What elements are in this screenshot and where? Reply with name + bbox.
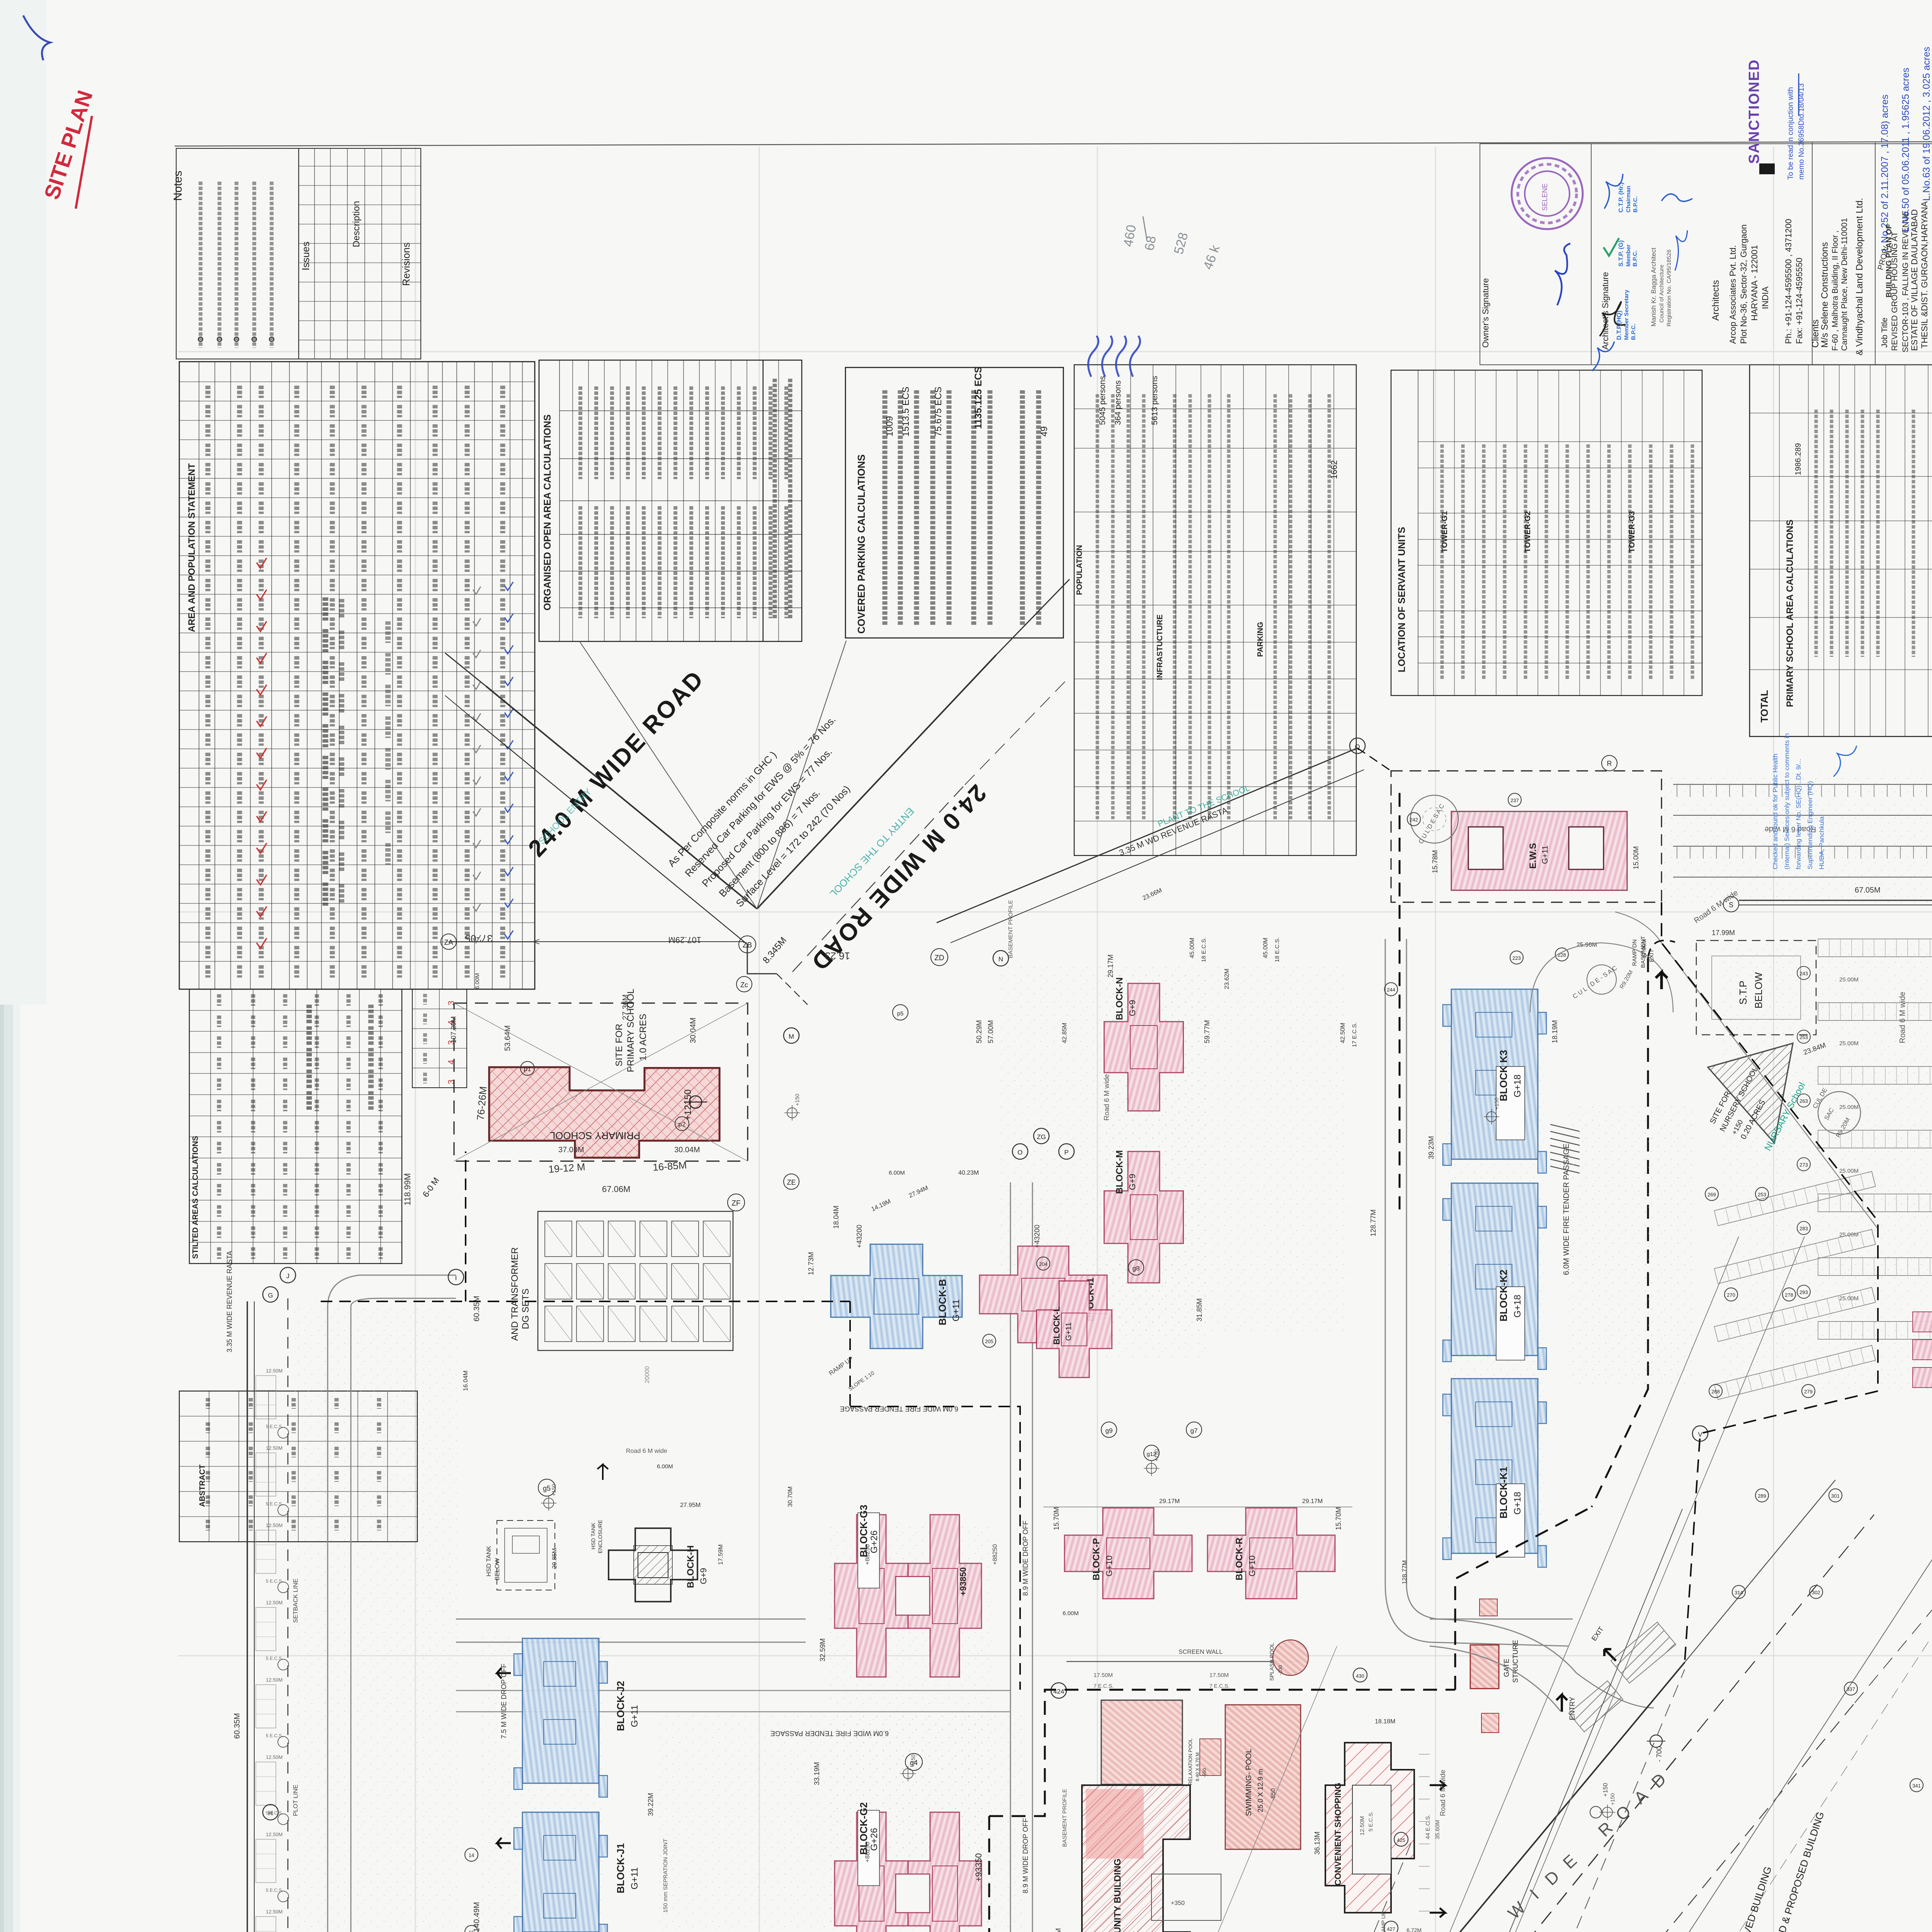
svg-text:Notes: Notes [172,171,184,201]
svg-text:RAMP UP: RAMP UP [1380,1911,1386,1932]
svg-text:Ph.: +91-124-4595500 , 4371200: Ph.: +91-124-4595500 , 4371200 [1784,219,1793,344]
svg-text:Manish Kr. Bagga Architect: Manish Kr. Bagga Architect [1650,248,1657,327]
svg-text:288: 288 [1711,1389,1720,1395]
svg-text:18.04M: 18.04M [832,1206,840,1229]
svg-text:+93350: +93350 [974,1853,983,1882]
svg-text:BLOCK-J2: BLOCK-J2 [615,1681,626,1731]
svg-text:5 E.C.S.: 5 E.C.S. [266,1578,283,1584]
svg-text:BLOCK-K2: BLOCK-K2 [1498,1270,1509,1321]
svg-text:BLOCK-B: BLOCK-B [937,1279,948,1325]
svg-text:G+9: G+9 [699,1568,708,1584]
svg-text:STRUCTURE: STRUCTURE [1512,1640,1519,1683]
svg-text:17 E.C.S.: 17 E.C.S. [1351,1022,1358,1047]
svg-text:237: 237 [1510,798,1519,803]
svg-text:128.77M: 128.77M [1401,1560,1408,1584]
svg-text:BLOCK-N: BLOCK-N [1114,977,1125,1020]
svg-text:- 700: - 700 [1655,1746,1663,1762]
svg-text:HSD TANK: HSD TANK [486,1546,492,1577]
svg-text:Cannaught Place, New Delhi-110: Cannaught Place, New Delhi-110001 [1840,218,1849,351]
svg-text:ABSTRACT: ABSTRACT [198,1464,207,1507]
svg-text:BLOCK-J1: BLOCK-J1 [615,1843,626,1893]
svg-text:g8: g8 [1133,1265,1140,1272]
svg-text:5045 persons: 5045 persons [1098,376,1107,425]
svg-text:46 k: 46 k [1201,243,1223,271]
svg-text:12.50M: 12.50M [1359,1816,1366,1835]
svg-text:20000: 20000 [644,1366,651,1383]
svg-text:R9.20M: R9.20M [1619,969,1634,990]
svg-text:6.00M: 6.00M [474,973,481,989]
svg-text:14.19M: 14.19M [871,1198,892,1213]
svg-text:L.No.63 of 19.06.2012 , 3.025: L.No.63 of 19.06.2012 , 3.025 acres [1921,47,1932,201]
svg-text:P: P [1064,1149,1068,1156]
svg-text:29.85M: 29.85M [551,1548,558,1569]
svg-text:1135.125 ECS: 1135.125 ECS [973,367,984,429]
svg-text:37'-05: 37'-05 [465,933,493,944]
svg-text:SITE PLAN: SITE PLAN [39,87,97,202]
svg-text:ORGANISED OPEN AREA CALCULATIO: ORGANISED OPEN AREA CALCULATIONS [542,415,553,611]
svg-text:60.35M: 60.35M [233,1713,241,1739]
svg-text:HARYANA - 122001: HARYANA - 122001 [1750,245,1759,321]
svg-text:242: 242 [1410,817,1418,823]
svg-text:7 E.C.S.: 7 E.C.S. [1094,1683,1114,1689]
svg-text:TOWER-G2: TOWER-G2 [1524,511,1532,553]
svg-text:BLOCK-R: BLOCK-R [1234,1537,1245,1580]
svg-text:THESIL &DIST. GURGAON,HARYANA: THESIL &DIST. GURGAON,HARYANA [1920,201,1929,349]
svg-text:204: 204 [1039,1261,1048,1267]
svg-text:RAMP DN: RAMP DN [1631,939,1638,966]
svg-text:+12150: +12150 [683,1089,693,1121]
svg-text:Arcop Associates Pvt. Ltd.: Arcop Associates Pvt. Ltd. [1728,245,1738,344]
svg-text:17.50M: 17.50M [1094,1672,1113,1679]
svg-text:forwarding letter No. SE(HQ)..: forwarding letter No. SE(HQ)...Dt. 9/... [1795,759,1802,869]
svg-text:1662: 1662 [1329,460,1339,479]
svg-text:To be read in conjuction with: To be read in conjuction with [1787,87,1795,180]
svg-text:BLOCK K3: BLOCK K3 [1498,1050,1509,1101]
svg-text:SWIMMING- POOL: SWIMMING- POOL [1245,1749,1253,1816]
svg-text:ZF: ZF [731,1199,740,1207]
svg-text:Fax: +91-124-4595550: Fax: +91-124-4595550 [1794,258,1804,344]
svg-text:31.85M: 31.85M [1196,1298,1203,1321]
svg-text:17.59M: 17.59M [718,1544,724,1565]
svg-text:BLOCK-P: BLOCK-P [1091,1538,1102,1580]
svg-text:15.78M: 15.78M [1431,850,1439,873]
svg-text:16.04M: 16.04M [463,1371,469,1391]
svg-text:TOTAL: TOTAL [1759,690,1770,723]
svg-text:12.50M: 12.50M [266,1909,282,1915]
svg-text:15.70M: 15.70M [1053,1507,1060,1530]
svg-text:Road 6 M wide: Road 6 M wide [1103,1074,1111,1121]
svg-text:g7: g7 [1190,1427,1198,1434]
svg-text:1.0 ACRES: 1.0 ACRES [638,1014,648,1061]
svg-text:67.06M: 67.06M [602,1184,630,1194]
svg-text:BUILDING PLAN OF: BUILDING PLAN OF [1885,224,1893,298]
svg-text:25.00M: 25.00M [1839,1168,1859,1174]
svg-text:27.94M: 27.94M [908,1185,930,1199]
svg-text:Member: Member [1625,244,1632,267]
svg-text:5 E.C.S.: 5 E.C.S. [266,1888,283,1893]
svg-text:283: 283 [1799,1226,1808,1231]
svg-text:314: 314 [1735,1590,1743,1595]
svg-text:6.72M: 6.72M [1406,1927,1422,1932]
svg-text:EXIT: EXIT [1648,949,1655,962]
svg-text:35.60M: 35.60M [1434,1820,1441,1839]
svg-text:BLOCK-K1: BLOCK-K1 [1498,1467,1509,1519]
svg-text:Road 6 M wide: Road 6 M wide [1439,1770,1447,1816]
svg-text:49: 49 [1039,426,1049,437]
svg-text:+93850: +93850 [958,1567,968,1596]
svg-text:J: J [286,1272,290,1280]
svg-text:SELENE: SELENE [1541,183,1549,211]
svg-text:17.50M: 17.50M [1209,1672,1229,1679]
svg-text:BASEMENT: BASEMENT [1640,936,1646,968]
svg-text:42.50M: 42.50M [1340,1023,1346,1043]
svg-text:C.T.P. (Hr.): C.T.P. (Hr.) [1618,182,1624,213]
svg-text:G+18: G+18 [1512,1075,1523,1097]
svg-text:269: 269 [1708,1192,1716,1197]
svg-text:Architect's Signature: Architect's Signature [1600,272,1610,350]
svg-text:R: R [1607,760,1612,767]
svg-text:D: D [1541,1867,1563,1889]
svg-text:Issues: Issues [300,241,311,270]
svg-text:G+11: G+11 [951,1299,961,1321]
svg-text:SLOPE 1:10: SLOPE 1:10 [847,1370,876,1392]
svg-text:273: 273 [1799,1162,1808,1168]
svg-text:& Vindhyachal Land Development: & Vindhyachal Land Development Ltd. [1854,198,1865,355]
svg-text:107.29M: 107.29M [668,935,701,945]
svg-text:278: 278 [1785,1292,1793,1298]
svg-text:12.50M: 12.50M [266,1832,282,1837]
svg-text:Architects: Architects [1711,280,1721,321]
svg-text:12.50M: 12.50M [266,1754,282,1760]
svg-text:AREA AND POPULATION STATEMENT: AREA AND POPULATION STATEMENT [187,463,197,632]
svg-text:23.66M: 23.66M [1142,887,1163,902]
svg-text:1513.5 ECS: 1513.5 ECS [901,387,911,437]
svg-text:Chairman: Chairman [1625,186,1632,213]
svg-text:17.99M: 17.99M [1712,929,1735,937]
svg-text:BASEMENT PROFILE: BASEMENT PROFILE [1061,1789,1068,1847]
svg-text:5 E.C.S.: 5 E.C.S. [1367,1811,1374,1832]
svg-text:C U L - D E - S A C: C U L - D E - S A C [1572,965,1619,1000]
svg-text:ZA: ZA [444,939,453,946]
svg-text:25.00M: 25.00M [1839,1040,1859,1047]
svg-text:5 E.C.S.: 5 E.C.S. [266,1656,283,1661]
svg-text:TOWER-G3: TOWER-G3 [1628,511,1636,553]
svg-text:G: G [268,1292,273,1299]
svg-text:150 mm SEPRATION JOINT: 150 mm SEPRATION JOINT [662,1839,669,1913]
svg-text:27.36M: 27.36M [621,994,630,1020]
svg-text:25.00M: 25.00M [1839,1295,1859,1302]
svg-text:263: 263 [1799,1098,1808,1104]
svg-text:12.50M: 12.50M [266,1368,282,1374]
svg-text:16.23: 16.23 [825,950,850,962]
svg-text:40.23M: 40.23M [958,1170,979,1176]
svg-text:Registration No. CA/95/18526: Registration No. CA/95/18526 [1666,250,1672,327]
svg-text:+88250: +88250 [864,1544,871,1565]
svg-text:6.00M: 6.00M [1063,1610,1079,1617]
svg-text:APPROVED BUILDING: APPROVED BUILDING [1730,1865,1774,1932]
svg-text:TOWER-G1: TOWER-G1 [1440,511,1449,553]
svg-text:BELOW: BELOW [494,1558,501,1580]
svg-text:+88250: +88250 [992,1544,998,1565]
svg-text:Plot No-36, Sector-32, Gurgaon: Plot No-36, Sector-32, Gurgaon [1739,224,1748,344]
svg-text:42.85M: 42.85M [1061,1023,1068,1043]
svg-text:+43200: +43200 [855,1225,863,1248]
svg-text:STILTED AREAS CALCULATIONS: STILTED AREAS CALCULATIONS [191,1136,200,1259]
svg-text:EXIT: EXIT [1590,1625,1605,1642]
svg-text:G+11: G+11 [629,1705,640,1727]
svg-text:-550: -550 [1202,1768,1207,1777]
svg-text:HUDA, Panchkula: HUDA, Panchkula [1818,816,1825,869]
svg-text:253: 253 [1758,1192,1766,1197]
svg-text:76-26M: 76-26M [474,1086,489,1121]
svg-text:B.P.C.: B.P.C. [1632,250,1638,267]
svg-text:L.No.50 of 05.06.2011 , 1.9562: L.No.50 of 05.06.2011 , 1.95625 acres [1900,68,1911,232]
svg-text:BASEMENT PROFILE: BASEMENT PROFILE [1007,900,1014,958]
svg-text:75.675 ECS: 75.675 ECS [933,387,944,437]
svg-text:+150: +150 [910,1754,916,1767]
svg-text:15.00M: 15.00M [1632,846,1640,869]
svg-text:107.29M: 107.29M [450,1016,457,1043]
svg-text:SETBACK LINE: SETBACK LINE [293,1578,299,1623]
svg-text:PRIMARY SCHOOL: PRIMARY SCHOOL [550,1130,641,1141]
svg-text:ENCLOSURE: ENCLOSURE [597,1520,603,1553]
svg-text:8.345M: 8.345M [761,935,789,966]
svg-text:G+9: G+9 [1128,1000,1137,1016]
svg-text:36.13M: 36.13M [1313,1832,1321,1855]
svg-text:G+10: G+10 [1104,1556,1114,1577]
svg-text:12.50M: 12.50M [266,1445,282,1451]
svg-text:DG SETS: DG SETS [520,1289,531,1329]
svg-text:337: 337 [1847,1686,1855,1692]
svg-text:341: 341 [1912,1783,1921,1789]
svg-text:+43200: +43200 [1033,1225,1041,1248]
svg-text:12.50M: 12.50M [266,1600,282,1605]
svg-text:B.P.C.: B.P.C. [1630,324,1637,340]
svg-text:45.00M: 45.00M [1189,938,1196,958]
svg-text:430: 430 [1356,1673,1364,1679]
svg-text:5 E.C.S.: 5 E.C.S. [266,1501,283,1507]
svg-text:BLOCK-M: BLOCK-M [1114,1150,1125,1194]
svg-text:18.18M: 18.18M [1375,1718,1395,1725]
svg-text:12.73M: 12.73M [807,1252,815,1275]
svg-text:G+10: G+10 [1247,1556,1257,1577]
svg-text:F-60 , Malhotra Building, II F: F-60 , Malhotra Building, II Floor , [1831,230,1840,351]
svg-text:CONVENIENT SHOPPING: CONVENIENT SHOPPING [1333,1783,1343,1886]
svg-text:57.00M: 57.00M [987,1020,995,1043]
svg-text:270: 270 [1727,1292,1735,1298]
svg-text:Revisions: Revisions [400,242,412,286]
svg-text:68: 68 [1142,235,1159,252]
svg-text:528: 528 [1171,231,1191,256]
svg-text:118.99M: 118.99M [403,1173,412,1206]
svg-text:INDIA: INDIA [1760,286,1770,309]
svg-text:COVERED PARKING CALCULATIONS: COVERED PARKING CALCULATIONS [855,454,867,634]
svg-text:8.9 M WIDE DROP OFF: 8.9 M WIDE DROP OFF [1022,1818,1029,1893]
svg-text:p5: p5 [897,1010,904,1017]
svg-text:SANCTIONED: SANCTIONED [1746,59,1762,164]
svg-text:14: 14 [469,1852,474,1858]
svg-text:G+11: G+11 [1541,845,1549,864]
svg-text:29.17M: 29.17M [1107,954,1114,978]
svg-text:15: 15 [469,1930,474,1932]
svg-text:M/s Selene Constructions: M/s Selene Constructions [1820,242,1830,348]
svg-text:Member Secretary: Member Secretary [1623,289,1630,340]
svg-text:18.19M: 18.19M [1551,1020,1559,1043]
svg-text:(Internal) Services only subje: (Internal) Services only subject to comm… [1783,733,1791,869]
svg-text:289: 289 [1758,1493,1766,1499]
svg-text:29.17M: 29.17M [1302,1498,1323,1505]
svg-text:39.22M: 39.22M [647,1793,655,1816]
svg-text:A: A [1631,1786,1652,1808]
svg-text:+88250: +88250 [864,1842,871,1862]
svg-text:-100: -100 [1277,1665,1283,1675]
svg-text:SPLASH POOL: SPLASH POOL [1269,1643,1275,1681]
svg-text:5 E.C.S.: 5 E.C.S. [266,1733,283,1738]
svg-text:25.96M: 25.96M [1577,942,1597,948]
svg-text:425: 425 [1397,1837,1405,1843]
svg-text:253: 253 [1799,1034,1808,1040]
svg-text:Road 6 M wide: Road 6 M wide [626,1448,667,1454]
svg-text:16-85M: 16-85M [652,1159,687,1173]
svg-text:BLOCK-L: BLOCK-L [1052,1306,1061,1345]
svg-text:1009: 1009 [884,416,895,437]
svg-text:+150: +150 [1153,1449,1160,1461]
svg-text:V: V [1698,1431,1702,1438]
svg-text:293: 293 [1799,1289,1808,1295]
svg-text:Job Title: Job Title [1880,318,1889,348]
svg-text:6-0 M: 6-0 M [421,1175,441,1199]
svg-text:PRIMARY SCHOOL AREA CALCULATIO: PRIMARY SCHOOL AREA CALCULATIONS [1785,520,1795,707]
svg-text:128.77M: 128.77M [1369,1209,1377,1236]
svg-text:19-12 M: 19-12 M [548,1161,585,1175]
svg-text:44 E.C.S.: 44 E.C.S. [1425,1815,1431,1839]
svg-text:18 E.C.S.: 18 E.C.S. [1201,937,1207,962]
svg-text:ZD: ZD [934,954,944,962]
svg-text:140.49M: 140.49M [473,1902,481,1932]
svg-text:25.00M: 25.00M [1839,976,1859,983]
svg-text:N: N [998,956,1003,963]
svg-text:E.W.S: E.W.S [1528,843,1538,869]
svg-text:W: W [1504,1898,1529,1923]
svg-text:364 persons: 364 persons [1114,380,1122,425]
svg-text:g5: g5 [543,1485,551,1492]
svg-text:SCREEN WALL: SCREEN WALL [1179,1649,1223,1655]
svg-text:C U L D E S A C: C U L D E S A C [1418,803,1446,845]
svg-text:25.00M: 25.00M [1839,1104,1859,1111]
svg-text:E: E [1560,1851,1581,1872]
svg-text:+150: +150 [794,1094,800,1106]
svg-text:G+9: G+9 [1128,1174,1137,1190]
svg-text:+350: +350 [1171,1900,1185,1906]
svg-text:G+18: G+18 [1512,1492,1523,1515]
svg-text:S.T.P: S.T.P [1737,981,1749,1005]
svg-text:33.19M: 33.19M [813,1762,821,1785]
svg-text:+150: +150 [1493,1097,1500,1110]
svg-text:18 E.C.S.: 18 E.C.S. [1274,937,1281,962]
svg-text:8.9 M WIDE DROP OFF: 8.9 M WIDE DROP OFF [1022,1520,1029,1596]
svg-text:228: 228 [1558,952,1566,958]
svg-text:BELOW: BELOW [1753,972,1764,1009]
svg-text:I: I [455,1274,457,1282]
svg-text:27.95M: 27.95M [680,1502,701,1509]
svg-text:COMMUNITY BUILDING: COMMUNITY BUILDING [1112,1859,1123,1932]
svg-text:+150: +150 [551,1484,557,1496]
svg-text:244: 244 [1387,987,1395,993]
svg-text:Council of Architecture: Council of Architecture [1658,265,1665,323]
svg-text:30.04M: 30.04M [689,1017,697,1043]
svg-text:57.41M: 57.41M [1054,1928,1062,1932]
svg-text:ZE: ZE [787,1179,796,1186]
svg-text:15.70M: 15.70M [1335,1507,1342,1530]
svg-text:30.04M: 30.04M [674,1146,700,1154]
svg-text:7 E.C.S.: 7 E.C.S. [1209,1683,1230,1689]
svg-text:BLOCK-H: BLOCK-H [685,1545,696,1588]
svg-text:12.50M: 12.50M [266,1677,282,1683]
svg-text:30.70M: 30.70M [787,1486,794,1507]
svg-text:6.0M WIDE FIRE TENDER PASSAGE: 6.0M WIDE FIRE TENDER PASSAGE [770,1730,889,1737]
svg-text:25.0 X 12.9 m: 25.0 X 12.9 m [1257,1769,1264,1812]
svg-text:53.64M: 53.64M [503,1025,512,1051]
svg-text:60.35M: 60.35M [473,1296,481,1321]
svg-text:8.40 X 4.70 M: 8.40 X 4.70 M [1195,1752,1200,1781]
svg-text:S.T.P. (G): S.T.P. (G) [1618,240,1624,267]
svg-text:223: 223 [1512,955,1521,961]
svg-text:1986.289: 1986.289 [1794,443,1803,475]
svg-text:B.P.C.: B.P.C. [1632,196,1639,213]
svg-text:5 E.C.S.: 5 E.C.S. [266,1424,283,1429]
svg-text:32.59M: 32.59M [819,1638,827,1662]
svg-text:SITE FOR: SITE FOR [614,1024,624,1066]
svg-text:g9: g9 [1105,1427,1113,1434]
svg-text:R: R [1595,1818,1617,1841]
svg-text:O: O [1017,1149,1022,1156]
svg-text:Road 6 M wide: Road 6 M wide [1898,992,1907,1043]
svg-text:LOCATION OF SERVANT UNITS: LOCATION OF SERVANT UNITS [1396,527,1407,672]
svg-text:INFRASTUCTURE: INFRASTUCTURE [1156,614,1164,680]
svg-text:POPULATION: POPULATION [1075,545,1084,595]
svg-text:67.05M: 67.05M [1855,886,1881,895]
svg-text:Owner's Signature: Owner's Signature [1481,278,1490,348]
svg-text:G+11: G+11 [629,1867,640,1889]
svg-text:H: H [268,1810,273,1817]
svg-text:302: 302 [1812,1590,1820,1595]
svg-text:45.00M: 45.00M [1262,938,1269,958]
svg-text:+150: +150 [1609,1793,1616,1805]
svg-text:39.23M: 39.23M [1427,1136,1435,1159]
svg-text:12.50M: 12.50M [266,1522,282,1528]
svg-text:243: 243 [1799,971,1808,976]
svg-text:G+18: G+18 [1512,1295,1523,1318]
svg-text:7.5 M WIDE DROP OFF: 7.5 M WIDE DROP OFF [500,1663,508,1739]
svg-text:Checked and found ok for Publi: Checked and found ok for Public Health [1772,753,1779,869]
svg-text:460: 460 [1121,224,1139,248]
svg-text:37.03M: 37.03M [558,1146,584,1154]
svg-text:6.00M: 6.00M [889,1170,905,1176]
svg-text:+150: +150 [1602,1783,1609,1797]
svg-text:Clients: Clients [1810,320,1821,348]
svg-text:M: M [789,1033,794,1040]
svg-text:Zc: Zc [740,981,748,989]
svg-text:427: 427 [1387,1926,1395,1932]
svg-text:50.29M: 50.29M [975,1020,983,1043]
svg-text:p1: p1 [524,1065,531,1073]
svg-text:PARKING: PARKING [1256,622,1265,657]
svg-text:G+11: G+11 [1065,1322,1073,1341]
svg-text:3.35 M WIDE REVENUE RASTA: 3.35 M WIDE REVENUE RASTA [226,1251,233,1352]
svg-text:301: 301 [1831,1493,1840,1499]
svg-text:6.00M: 6.00M [657,1463,673,1470]
svg-text:23.62M: 23.62M [1224,969,1230,989]
